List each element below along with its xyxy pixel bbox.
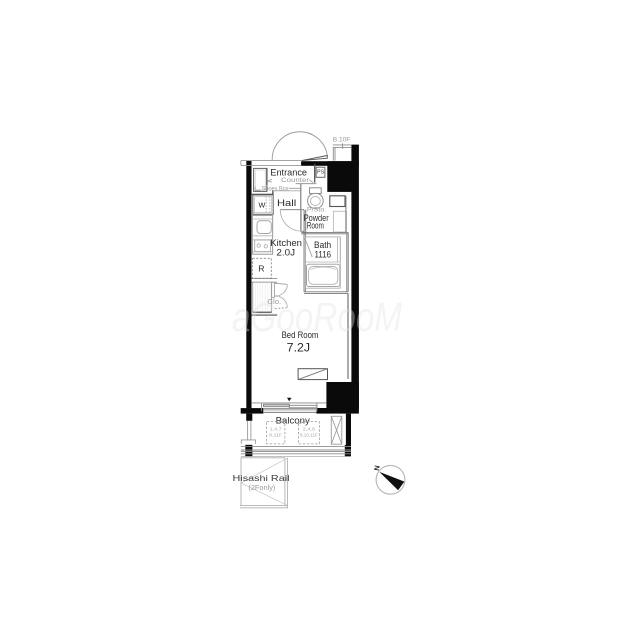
svg-text:9,10,11F: 9,10,11F bbox=[300, 433, 318, 438]
svg-text:(2Fonly): (2Fonly) bbox=[248, 485, 275, 492]
svg-text:PS: PS bbox=[317, 170, 324, 176]
svg-text:2.0J: 2.0J bbox=[276, 248, 295, 258]
svg-text:Bath: Bath bbox=[314, 240, 331, 250]
svg-text:Hall: Hall bbox=[277, 198, 296, 208]
svg-text:8,11F: 8,11F bbox=[269, 433, 282, 438]
svg-text:1116: 1116 bbox=[315, 250, 332, 260]
svg-text:7.2J: 7.2J bbox=[287, 340, 310, 354]
svg-text:2,4,6: 2,4,6 bbox=[303, 427, 316, 432]
svg-text:W: W bbox=[259, 201, 266, 210]
svg-text:Room: Room bbox=[307, 221, 324, 231]
svg-text:Kitchen: Kitchen bbox=[270, 238, 302, 248]
svg-text:Counter: Counter bbox=[281, 177, 310, 184]
svg-text:Hisashi Rail: Hisashi Rail bbox=[233, 473, 290, 483]
svg-text:Shoes Box: Shoes Box bbox=[262, 186, 289, 193]
svg-text:1,4,7: 1,4,7 bbox=[270, 427, 283, 432]
svg-text:aGooRooM: aGooRooM bbox=[232, 294, 403, 340]
svg-text:R: R bbox=[258, 264, 264, 274]
svg-text:B.10F: B.10F bbox=[333, 136, 351, 143]
svg-text:Balcony: Balcony bbox=[276, 415, 311, 425]
